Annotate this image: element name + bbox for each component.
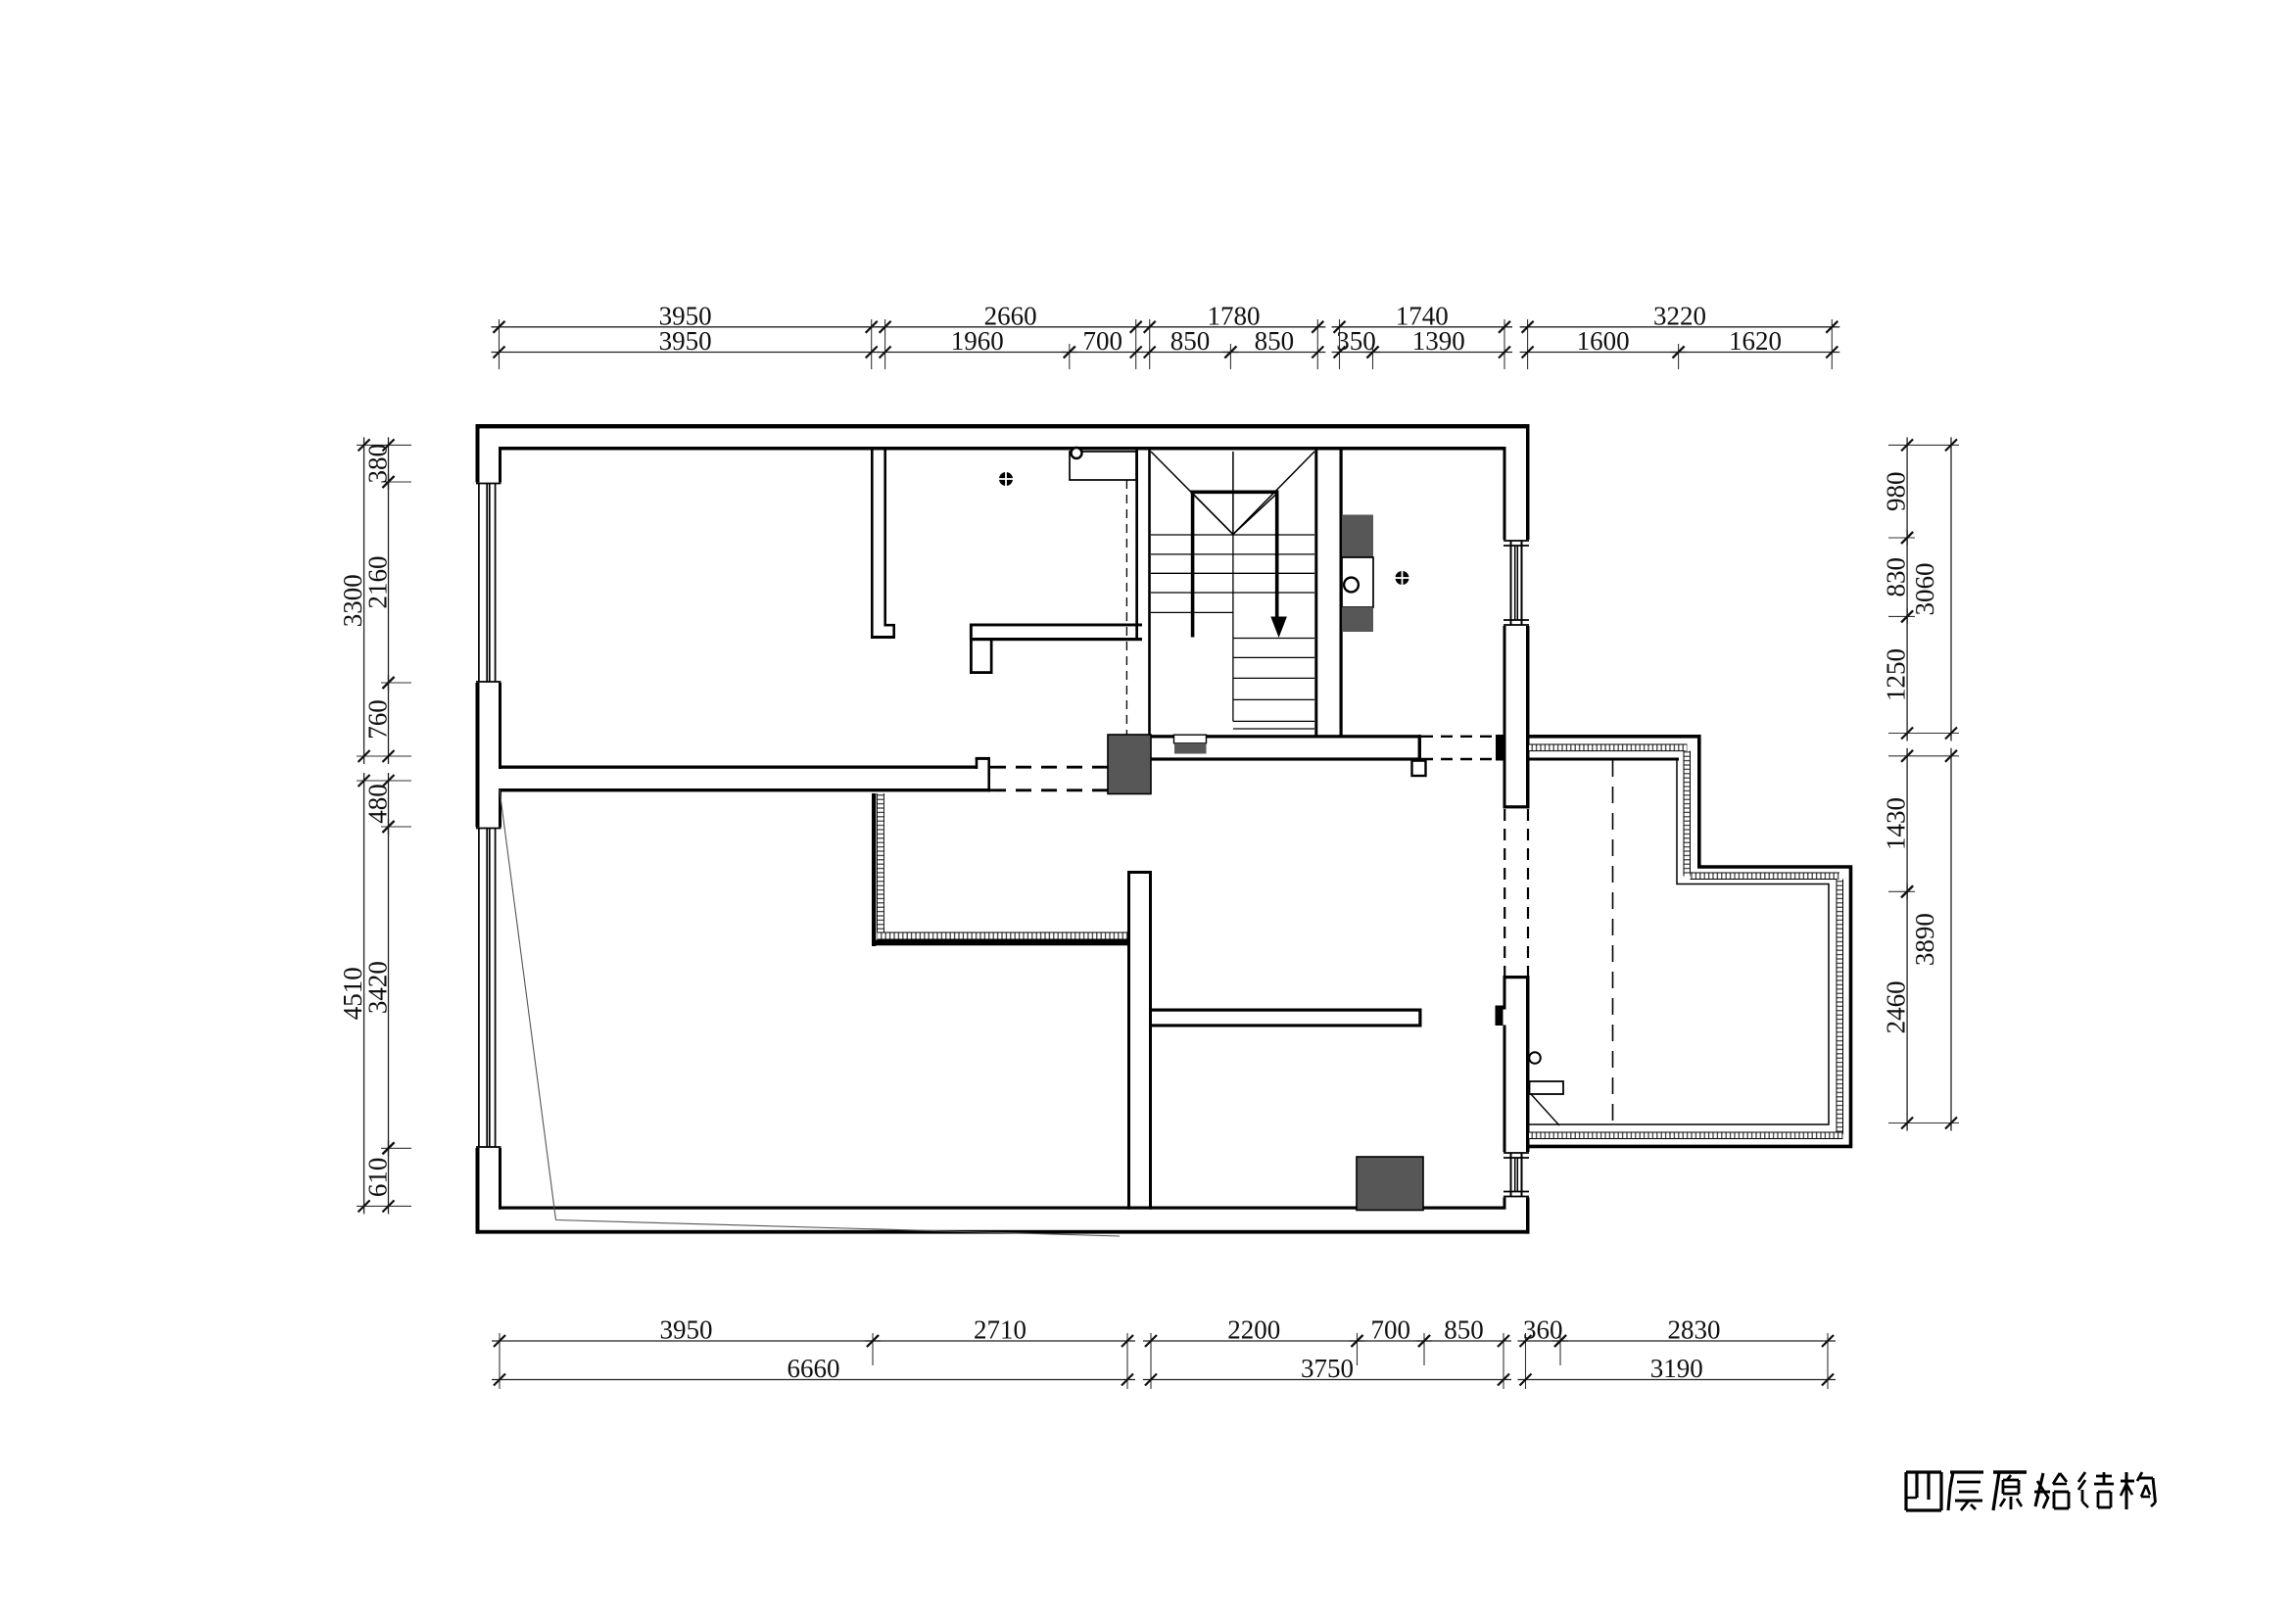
svg-text:2460: 2460 bbox=[1882, 980, 1911, 1033]
svg-text:830: 830 bbox=[1882, 557, 1911, 597]
svg-text:360: 360 bbox=[1523, 1314, 1563, 1344]
svg-text:2200: 2200 bbox=[1227, 1314, 1280, 1344]
svg-text:850: 850 bbox=[1255, 326, 1295, 356]
svg-text:1620: 1620 bbox=[1729, 326, 1782, 356]
svg-text:850: 850 bbox=[1444, 1314, 1484, 1344]
svg-text:3190: 3190 bbox=[1650, 1354, 1703, 1383]
svg-text:1600: 1600 bbox=[1577, 326, 1630, 356]
svg-text:3950: 3950 bbox=[659, 326, 712, 356]
svg-text:760: 760 bbox=[363, 699, 393, 740]
svg-text:850: 850 bbox=[1170, 326, 1211, 356]
svg-text:3220: 3220 bbox=[1653, 301, 1706, 330]
svg-text:480: 480 bbox=[363, 784, 393, 824]
svg-text:2830: 2830 bbox=[1668, 1314, 1721, 1344]
svg-text:1780: 1780 bbox=[1208, 301, 1261, 330]
svg-text:3060: 3060 bbox=[1910, 562, 1939, 615]
svg-text:2160: 2160 bbox=[363, 556, 393, 609]
svg-text:3420: 3420 bbox=[363, 961, 393, 1014]
svg-text:1250: 1250 bbox=[1882, 648, 1911, 701]
svg-text:1390: 1390 bbox=[1412, 326, 1465, 356]
svg-text:2710: 2710 bbox=[974, 1314, 1026, 1344]
svg-text:980: 980 bbox=[1882, 471, 1911, 511]
svg-text:3890: 3890 bbox=[1910, 913, 1939, 966]
svg-text:610: 610 bbox=[363, 1158, 393, 1198]
svg-text:1430: 1430 bbox=[1882, 797, 1911, 850]
svg-text:3750: 3750 bbox=[1301, 1354, 1354, 1383]
svg-text:3950: 3950 bbox=[660, 1314, 713, 1344]
svg-text:700: 700 bbox=[1083, 326, 1123, 356]
svg-text:1960: 1960 bbox=[951, 326, 1004, 356]
svg-text:700: 700 bbox=[1371, 1314, 1411, 1344]
svg-text:6660: 6660 bbox=[788, 1354, 840, 1383]
svg-text:350: 350 bbox=[1336, 326, 1376, 356]
